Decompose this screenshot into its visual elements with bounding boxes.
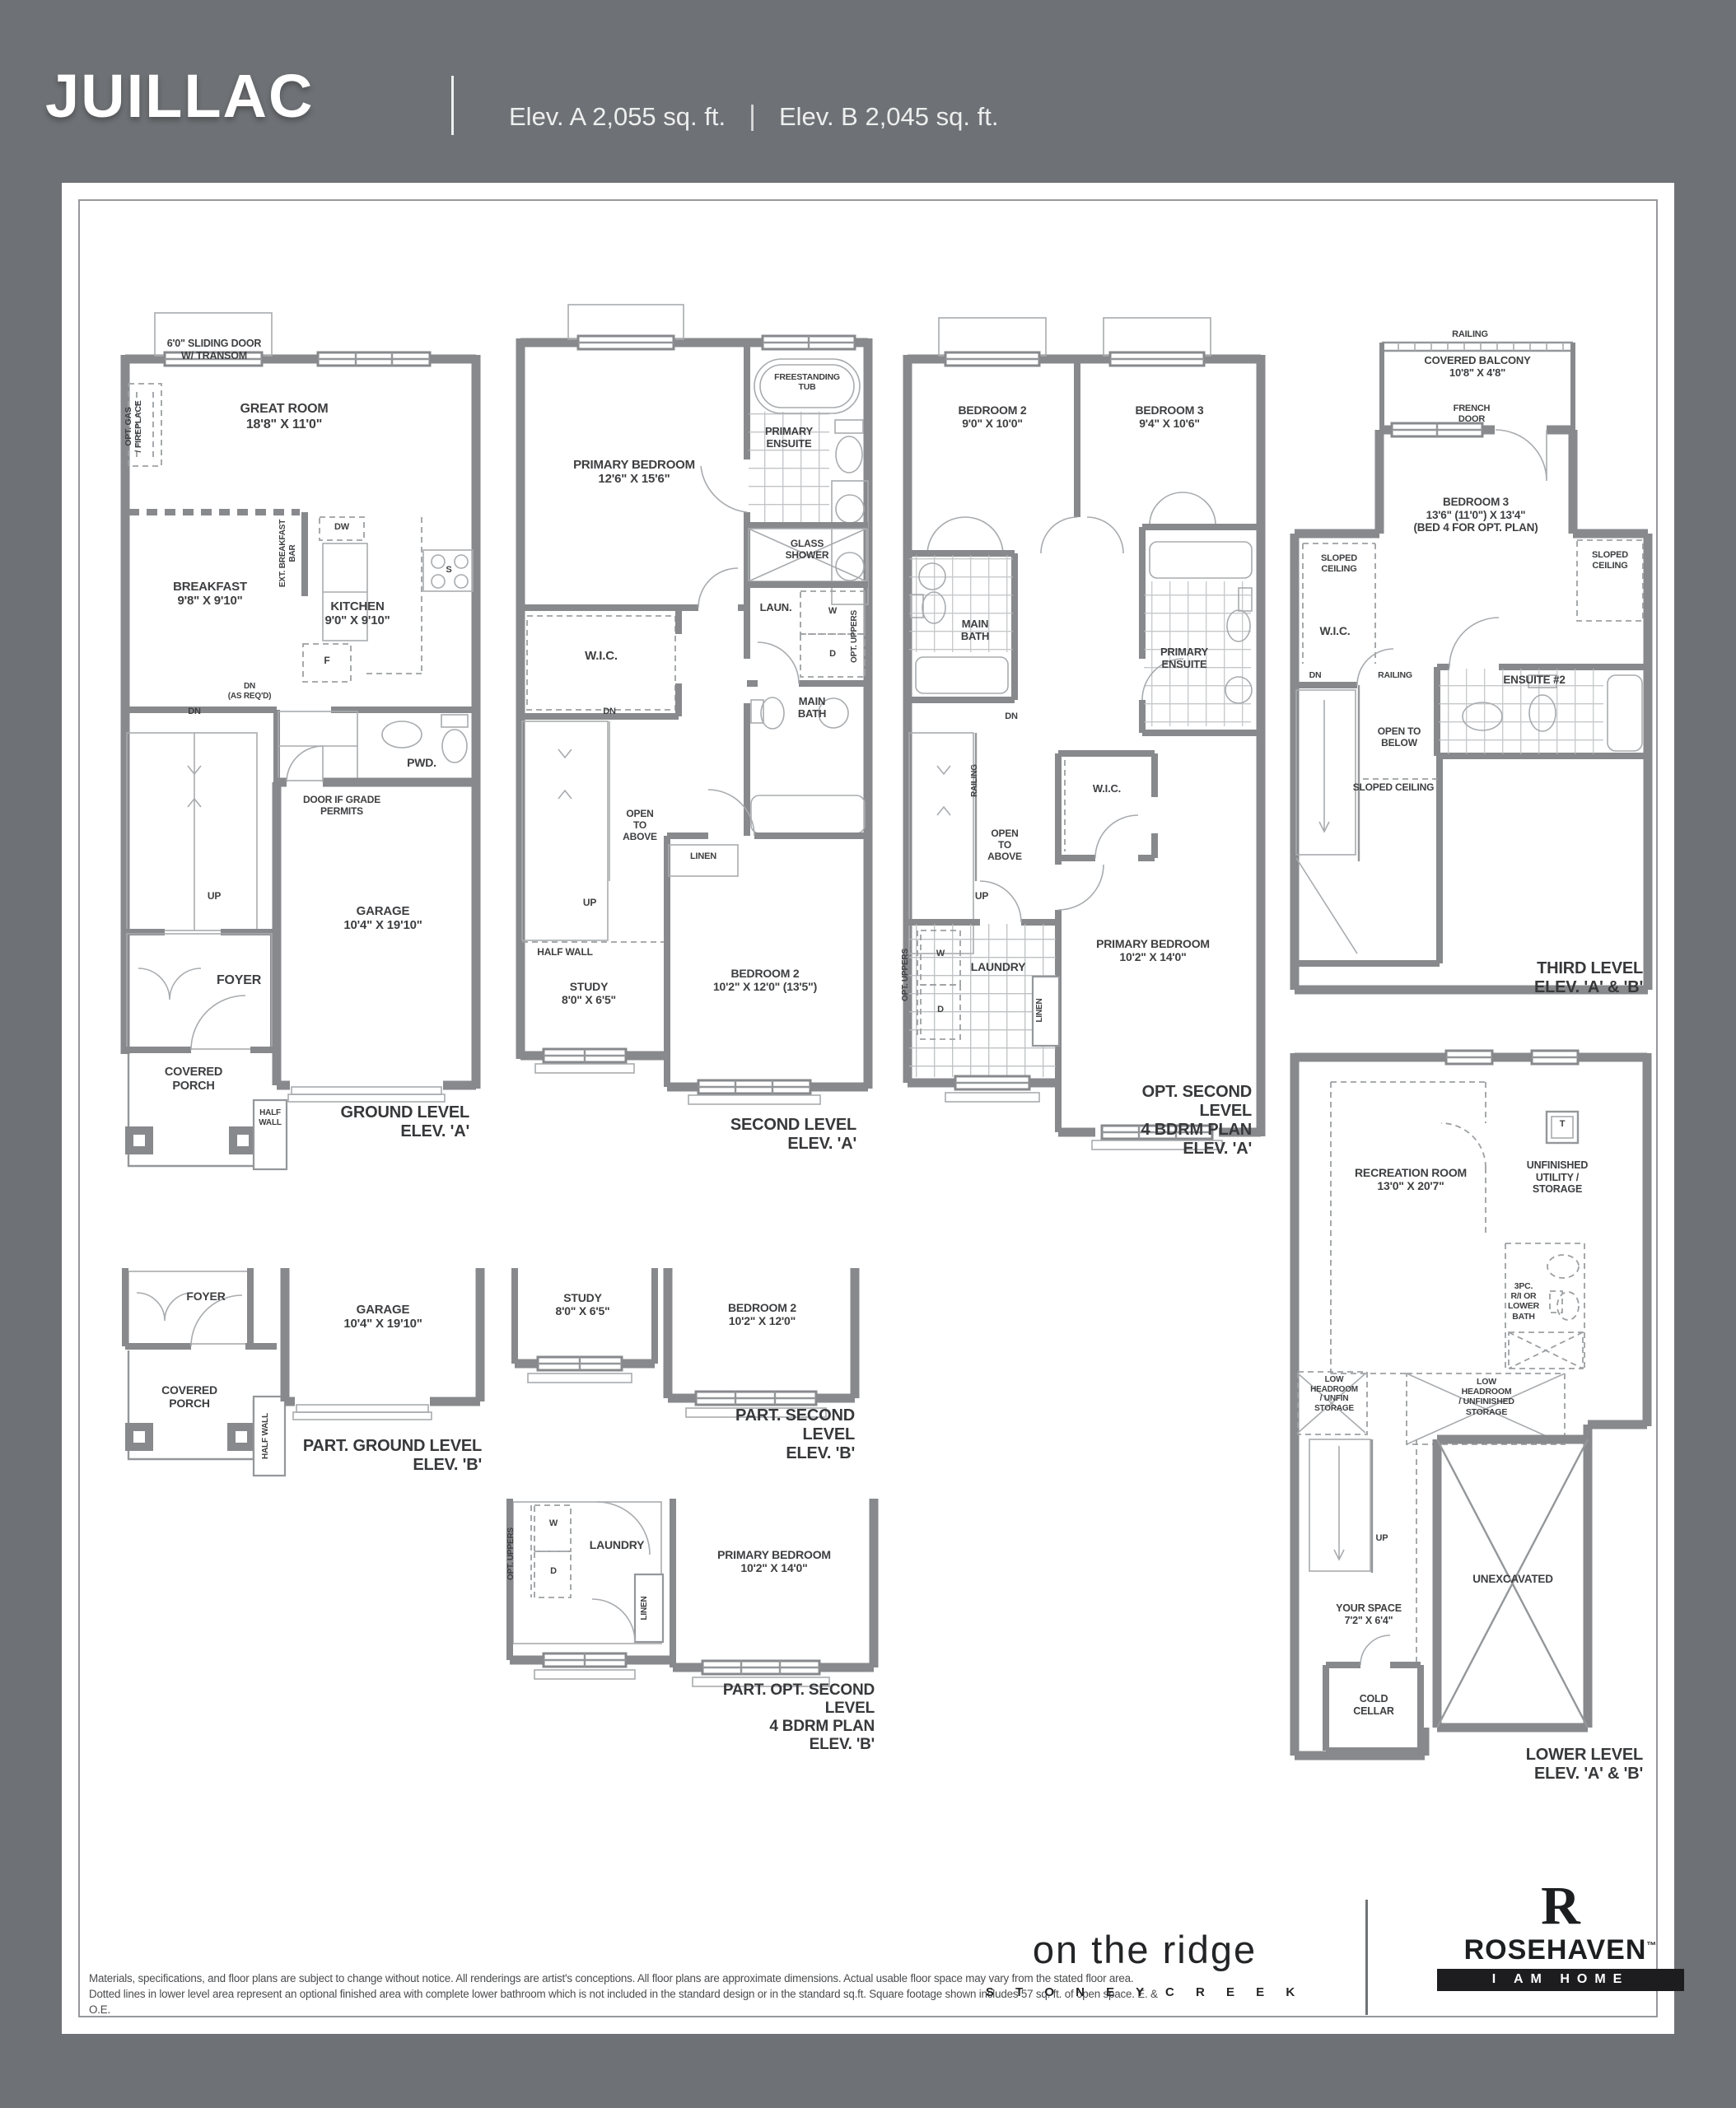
label-ensuite2: ENSUITE #2 — [1484, 674, 1584, 687]
spec-separator: | — [749, 100, 756, 133]
label-open-to-above: OPEN TO ABOVE — [603, 809, 677, 843]
label-wic: W.I.C. — [1069, 782, 1145, 795]
label-half-wall: HALF WALL — [255, 1108, 285, 1127]
label-main-bath: MAIN BATH — [940, 618, 1010, 642]
label-bedroom3: BEDROOM 3 13'6" (11'0") X 13'4" (BED 4 F… — [1382, 496, 1570, 534]
label-opt-gas-fireplace: OPT. GAS / FIREPLACE — [124, 384, 143, 469]
builder-tm: ™ — [1646, 1939, 1657, 1951]
label-great-room: GREAT ROOM 18'8" X 11'0" — [189, 402, 379, 432]
plan-title-opt-second-a: OPT. SECOND LEVEL 4 BDRM PLAN ELEV. 'A' — [1099, 1083, 1252, 1159]
label-dn: DN — [593, 707, 626, 717]
plan-title-second-a: SECOND LEVEL ELEV. 'A' — [684, 1116, 856, 1154]
label-french-door: FRENCH DOOR — [1435, 403, 1509, 425]
builder-tagline: I AM HOME — [1437, 1969, 1684, 1991]
ground-a-drawing — [115, 305, 486, 1235]
plan-part-second-b: STUDY 8'0" X 6'5" BEDROOM 2 10'2" X 12'0… — [498, 1268, 856, 1441]
label-dryer: D — [822, 649, 843, 660]
label-bedroom3: BEDROOM 3 9'4" X 10'6" — [1099, 403, 1239, 430]
label-linen: LINEN — [1035, 983, 1045, 1038]
plan-third-level-ab: RAILING COVERED BALCONY 10'8" X 4'8" FRE… — [1285, 305, 1655, 1021]
label-dn-as-reqd: DN (AS REQ'D) — [214, 682, 285, 701]
label-unfinished-utility: UNFINISHED UTILITY / STORAGE — [1507, 1159, 1608, 1196]
label-linen: LINEN — [669, 851, 738, 862]
label-bedroom2: BEDROOM 2 9'0" X 10'0" — [922, 403, 1062, 430]
label-bedroom2: BEDROOM 2 10'2" X 12'0" — [698, 1301, 826, 1327]
label-garage: GARAGE 10'4" X 19'10" — [317, 904, 449, 933]
label-thermostat: T — [1547, 1119, 1578, 1130]
label-breakfast: BREAKFAST 9'8" X 9'10" — [140, 580, 280, 609]
label-railing-top: RAILING — [1416, 329, 1524, 340]
label-opt-uppers: OPT. UPPERS — [506, 1505, 516, 1602]
label-linen: LINEN — [640, 1579, 650, 1637]
plan-title-part-opt-second-b: PART. OPT. SECOND LEVEL 4 BDRM PLAN ELEV… — [675, 1681, 875, 1753]
page-title: JUILLAC — [45, 61, 314, 131]
label-garage: GARAGE 10'4" X 19'10" — [317, 1303, 449, 1331]
label-sloped-ceiling-right: SLOPED CEILING — [1575, 550, 1645, 571]
label-covered-porch: COVERED PORCH — [144, 1383, 235, 1410]
plan-title-ground-a: GROUND LEVEL ELEV. 'A' — [309, 1103, 469, 1141]
label-half-wall: HALF WALL — [261, 1400, 271, 1472]
label-primary-bedroom: PRIMARY BEDROOM 12'6" X 15'6" — [556, 458, 712, 487]
label-open-to-below: OPEN TO BELOW — [1363, 726, 1435, 749]
label-dryer: D — [931, 1005, 950, 1015]
label-low-headroom-unfin: LOW HEADROOM / UNFIN STORAGE — [1296, 1375, 1372, 1413]
label-ext-breakfast-bar: EXT. BREAKFAST BAR — [278, 512, 297, 595]
label-dn: DN — [178, 707, 211, 717]
label-primary-bedroom: PRIMARY BEDROOM 10'2" X 14'0" — [1085, 937, 1220, 963]
label-laundry: LAUNDRY — [571, 1538, 663, 1551]
label-main-bath: MAIN BATH — [768, 695, 856, 720]
elev-b-sqft: Elev. B 2,045 sq. ft. — [779, 102, 999, 132]
label-cold-cellar: COLD CELLAR — [1339, 1693, 1408, 1717]
label-freestanding-tub: FREESTANDING TUB — [758, 372, 856, 392]
label-low-headroom-unfinished: LOW HEADROOM / UNFINISHED STORAGE — [1441, 1377, 1532, 1417]
elevation-specs: Elev. A 2,055 sq. ft. | Elev. B 2,045 sq… — [509, 100, 998, 133]
label-glass-shower: GLASS SHOWER — [766, 539, 848, 562]
label-study: STUDY 8'0" X 6'5" — [531, 1291, 634, 1317]
label-railing: RAILING — [970, 739, 980, 822]
label-kitchen: KITCHEN 9'0" X 9'10" — [309, 599, 406, 628]
label-laundry: LAUN. — [751, 601, 800, 613]
label-primary-bedroom: PRIMARY BEDROOM 10'2" X 14'0" — [704, 1548, 844, 1574]
label-3pc-bath: 3PC. R/I OR LOWER BATH — [1494, 1281, 1553, 1322]
label-up: UP — [964, 891, 1000, 902]
label-foyer: FOYER — [165, 1290, 247, 1303]
plan-title-part-ground-b: PART. GROUND LEVEL ELEV. 'B' — [284, 1437, 482, 1475]
label-dn: DN — [993, 711, 1029, 722]
label-your-space: YOUR SPACE 7'2" X 6'4" — [1321, 1602, 1416, 1626]
plan-opt-second-level-a: BEDROOM 2 9'0" X 10'0" BEDROOM 3 9'4" X … — [898, 305, 1272, 1260]
builder-monogram-icon: R — [1400, 1881, 1721, 1933]
label-washer: W — [543, 1518, 564, 1529]
label-opt-uppers: OPT. UPPERS — [850, 593, 860, 680]
community-location: S T O N E Y C R E E K — [964, 1985, 1326, 1999]
plan-part-ground-b: FOYER GARAGE 10'4" X 19'10" COVERED PORC… — [115, 1268, 486, 1565]
label-primary-ensuite: PRIMARY ENSUITE — [1145, 646, 1224, 670]
label-door-if-grade: DOOR IF GRADE PERMITS — [276, 795, 408, 818]
label-up: UP — [196, 891, 232, 902]
label-fridge: F — [315, 655, 339, 667]
plan-title-third-ab: THIRD LEVEL ELEV. 'A' & 'B' — [1474, 959, 1643, 997]
label-foyer: FOYER — [194, 973, 284, 989]
label-opt-uppers: OPT. UPPERS — [901, 935, 911, 1014]
label-up: UP — [1367, 1533, 1397, 1544]
label-powder: PWD. — [387, 756, 456, 769]
label-study: STUDY 8'0" X 6'5" — [539, 980, 638, 1006]
builder-name: ROSEHAVEN™ — [1400, 1934, 1721, 1966]
plan-title-part-second-b: PART. SECOND LEVEL ELEV. 'B' — [684, 1406, 855, 1463]
label-covered-balcony: COVERED BALCONY 10'8" X 4'8" — [1390, 354, 1565, 379]
plan-ground-level-a: 6'0" SLIDING DOOR W/ TRANSOM OPT. GAS / … — [115, 305, 486, 1235]
label-open-to-above: OPEN TO ABOVE — [964, 828, 1046, 863]
label-dn: DN — [1300, 670, 1331, 680]
floorplan-sheet: 6'0" SLIDING DOOR W/ TRANSOM OPT. GAS / … — [62, 183, 1674, 2034]
label-wic: W.I.C. — [556, 649, 646, 663]
label-laundry: LAUNDRY — [952, 960, 1044, 973]
plan-title-lower-ab: LOWER LEVEL ELEV. 'A' & 'B' — [1482, 1746, 1643, 1784]
label-stove: S — [441, 565, 456, 576]
label-unexcavated: UNEXCAVATED — [1461, 1573, 1565, 1586]
plan-lower-level-ab: RECREATION ROOM 13'0" X 20'7" T UNFINISH… — [1285, 1046, 1655, 1910]
elev-a-sqft: Elev. A 2,055 sq. ft. — [509, 102, 726, 132]
header-divider — [451, 76, 454, 135]
builder-name-text: ROSEHAVEN — [1464, 1934, 1647, 1966]
logo-divider — [1365, 1900, 1368, 2015]
builder-logo: R ROSEHAVEN™ I AM HOME — [1400, 1881, 1721, 1991]
label-dishwasher: DW — [320, 522, 364, 533]
label-sloped-ceiling3: SLOPED CEILING — [1342, 782, 1444, 794]
label-recreation-room: RECREATION ROOM 13'0" X 20'7" — [1332, 1166, 1489, 1192]
community-name: on the ridge — [964, 1927, 1326, 1972]
label-wic: W.I.C. — [1301, 624, 1369, 637]
label-sliding-door: 6'0" SLIDING DOOR W/ TRANSOM — [140, 338, 288, 361]
plan-part-opt-second-b: OPT. UPPERS W D LAUNDRY LINEN PRIMARY BE… — [498, 1499, 877, 1754]
label-half-wall: HALF WALL — [519, 947, 611, 958]
label-washer: W — [931, 949, 950, 959]
label-covered-porch: COVERED PORCH — [144, 1066, 243, 1094]
label-dryer: D — [543, 1566, 564, 1577]
label-sloped-ceiling-left: SLOPED CEILING — [1305, 553, 1373, 575]
label-railing2: RAILING — [1362, 670, 1428, 680]
label-primary-ensuite: PRIMARY ENSUITE — [748, 425, 830, 450]
label-up: UP — [573, 898, 606, 909]
label-bedroom2: BEDROOM 2 10'2" X 12'0" (13'5") — [696, 967, 834, 993]
community-logo: on the ridge S T O N E Y C R E E K — [964, 1927, 1326, 1999]
plan-second-level-a: FREESTANDING TUB PRIMARY ENSUITE PRIMARY… — [511, 305, 881, 1235]
label-washer: W — [822, 606, 843, 617]
